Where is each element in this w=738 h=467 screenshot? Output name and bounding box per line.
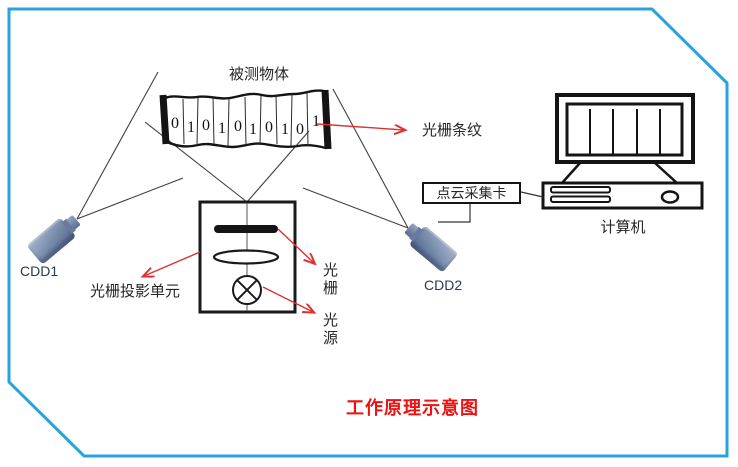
grating-stripes-label: 光栅条纹 [422, 122, 482, 139]
cone-left-line [145, 122, 247, 202]
grating-bar [214, 225, 278, 233]
banner-digit: 1 [281, 121, 289, 138]
banner-left-edge [163, 95, 166, 144]
cdd1-lower-sight-line [77, 178, 183, 219]
computer-label: 计算机 [597, 219, 649, 236]
banner-digit: 1 [249, 121, 257, 138]
measured-object-label: 被测物体 [220, 66, 298, 83]
power-button [662, 192, 678, 203]
banner-digit: 1 [187, 119, 195, 136]
cdd2-label: CDD2 [424, 277, 462, 294]
card-to-cdd2-line [438, 204, 470, 222]
lens-ellipse [214, 251, 278, 264]
diagram-title: 工作原理示意图 [346, 394, 496, 420]
cdd1-label: CDD1 [20, 263, 58, 280]
light-source-label: 光源 [323, 312, 340, 348]
card-to-computer-line [521, 192, 543, 197]
banner-digit: 0 [171, 115, 179, 132]
banner-digit: 0 [296, 121, 304, 138]
banner-right-edge [325, 90, 328, 149]
cdd2-upper-sight-line [333, 89, 408, 228]
banner-digit: 1 [218, 120, 226, 137]
grating-label: 光栅 [323, 262, 340, 298]
banner-top-edge [165, 91, 324, 99]
monitor-stand [562, 163, 677, 183]
cone-right-line [247, 131, 309, 202]
computer-graphic [543, 95, 702, 208]
cdd2-lower-sight-line [303, 188, 408, 228]
light-source-symbol [233, 276, 261, 304]
banner-digit: 1 [312, 113, 320, 130]
banner-digit: 0 [234, 118, 242, 135]
banner-digit: 0 [202, 117, 210, 134]
diagram-canvas: 0 1 0 1 0 1 0 1 0 1 [0, 0, 738, 467]
measured-object-banner: 0 1 0 1 0 1 0 1 0 1 [163, 90, 328, 149]
projection-unit-label: 光栅投影单元 [90, 283, 180, 300]
monitor-screen [567, 104, 682, 155]
arrow-projection-unit [144, 252, 200, 276]
banner-digit: 0 [265, 119, 273, 136]
point-cloud-capture-card-box: 点云采集卡 [422, 182, 521, 204]
cdd1-upper-sight-line [77, 72, 158, 219]
